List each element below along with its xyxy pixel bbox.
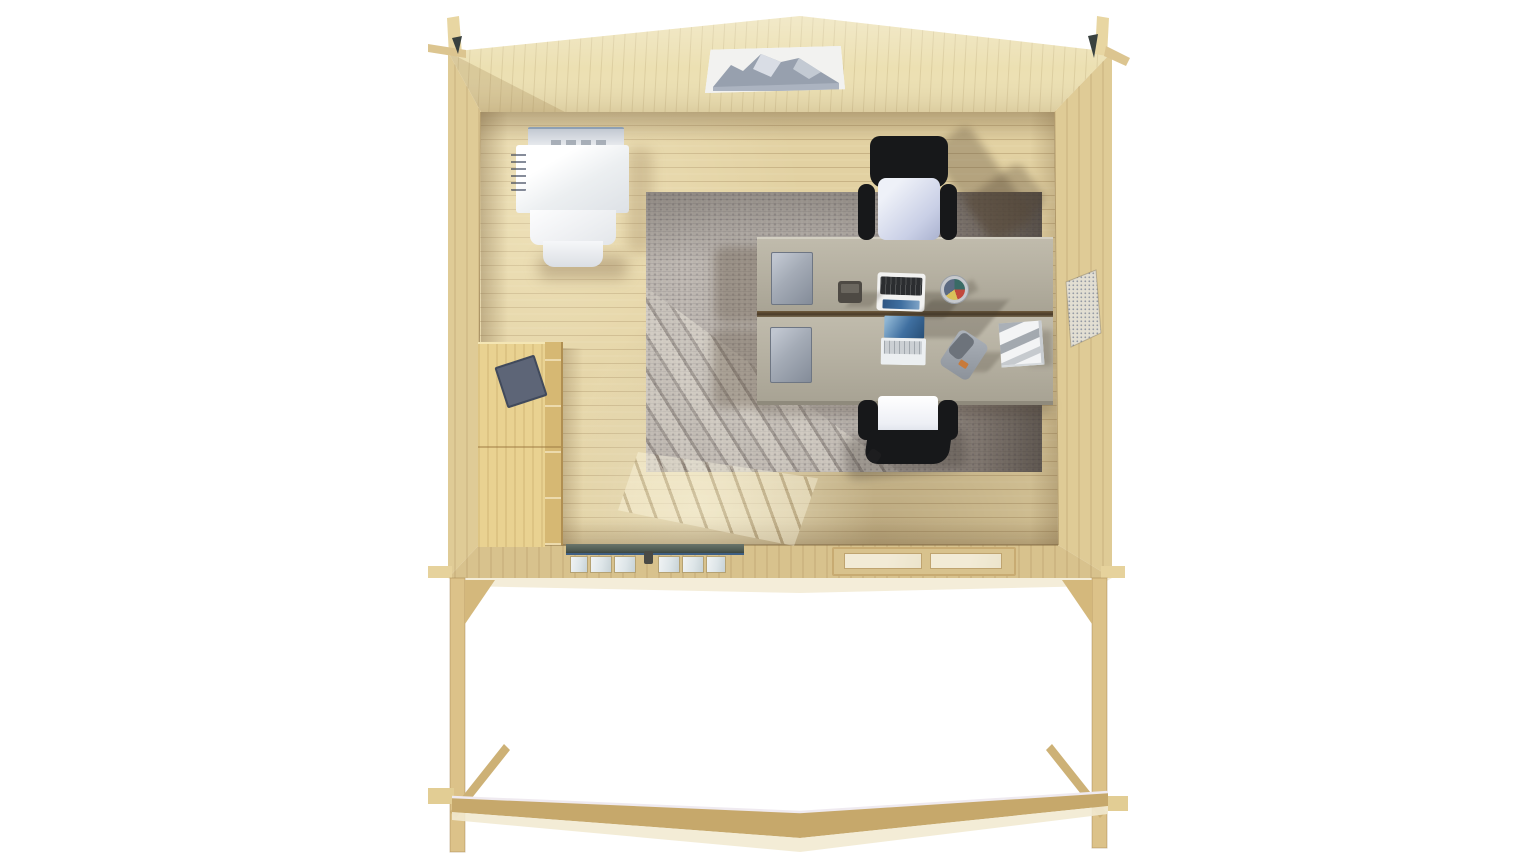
office-chair-near [852, 392, 964, 466]
door-glass-pane-2 [590, 556, 612, 573]
desk-phone [838, 281, 862, 303]
vent-grille [1066, 270, 1101, 347]
chair-far-armrest-right [940, 184, 957, 240]
left-wall [448, 52, 481, 578]
chair-far-armrest-left [858, 184, 875, 240]
door-handle [644, 551, 653, 564]
door-header-frame [566, 544, 744, 555]
pedestal-far [771, 252, 813, 305]
deck-beam [452, 792, 1108, 852]
cabinet-shadow [561, 348, 583, 546]
pen-cup [941, 276, 968, 303]
window-pane-left [844, 553, 922, 569]
front-window [832, 547, 1016, 576]
paper-stack [999, 321, 1045, 368]
wall-poster [511, 149, 526, 191]
laptop-far-keyboard [880, 276, 923, 295]
door-glass-pane-4 [658, 556, 680, 573]
window-pane-right [930, 553, 1002, 569]
front-wall-highlight [448, 578, 1112, 593]
laptop-near [881, 316, 927, 369]
door-glass-pane-5 [682, 556, 704, 573]
mountain-art [705, 45, 845, 93]
tall-cabinet-seam [478, 446, 561, 448]
white-unit-lip [543, 241, 603, 267]
door-glass-pane-6 [706, 556, 726, 573]
door-glass-pane-3 [614, 556, 636, 573]
door-glass-pane-1 [570, 556, 588, 573]
pedestal-near [770, 327, 812, 383]
tall-cabinet-side [545, 342, 563, 545]
laptop-far-screen [882, 299, 919, 309]
laptop-near-keyboard [881, 338, 926, 366]
right-wall [1054, 52, 1112, 578]
white-unit-body [516, 145, 629, 213]
office-chair-far [858, 136, 958, 240]
white-unit-lower [530, 210, 616, 245]
scene-canvas [0, 0, 1536, 864]
chair-far-seat [878, 178, 940, 240]
mountain-picture [705, 45, 845, 93]
laptop-near-screen [884, 316, 924, 339]
